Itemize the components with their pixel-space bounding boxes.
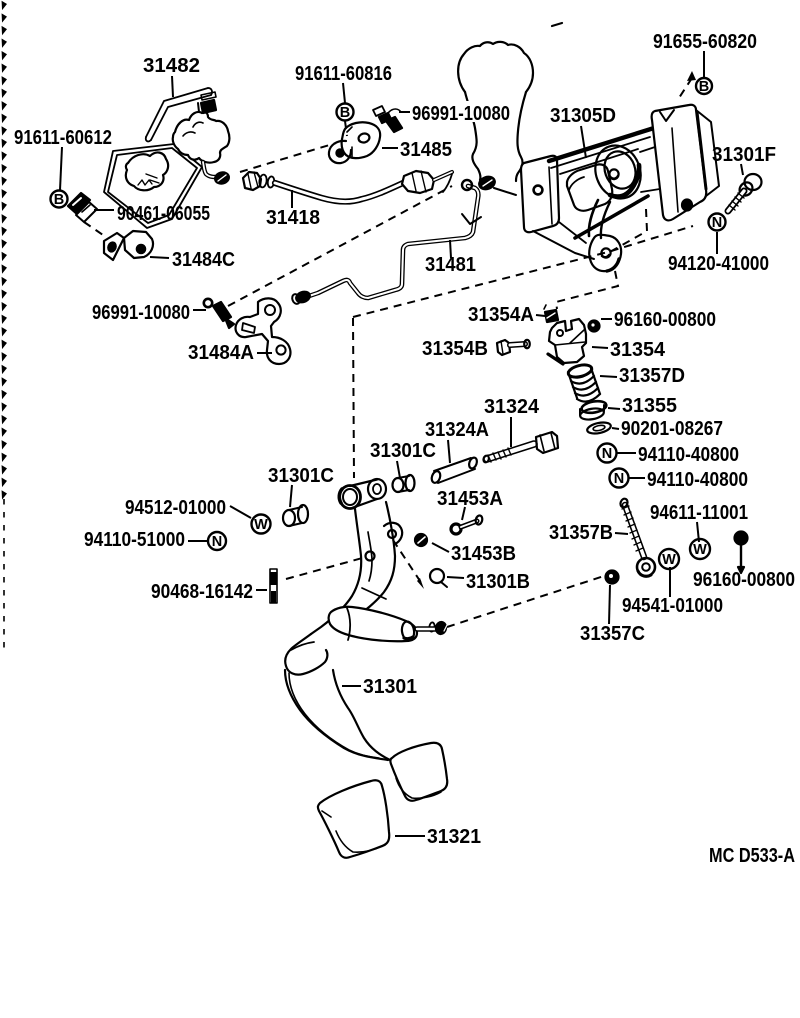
svg-text:96991-10080: 96991-10080	[92, 301, 190, 324]
svg-text:31481: 31481	[425, 253, 476, 276]
svg-text:31354A: 31354A	[468, 303, 534, 326]
svg-text:31321: 31321	[427, 825, 481, 848]
svg-text:96991-10080: 96991-10080	[412, 102, 510, 125]
svg-text:90461-06055: 90461-06055	[117, 202, 210, 225]
svg-text:N: N	[614, 471, 624, 487]
svg-text:31301C: 31301C	[268, 464, 334, 487]
svg-text:31324A: 31324A	[425, 418, 489, 441]
svg-text:N: N	[212, 534, 222, 550]
svg-text:31305D: 31305D	[550, 104, 616, 127]
svg-text:31484C: 31484C	[172, 248, 235, 271]
svg-text:94110-40800: 94110-40800	[647, 468, 748, 491]
svg-text:W: W	[662, 552, 676, 568]
svg-text:91655-60820: 91655-60820	[653, 30, 757, 53]
svg-text:31453A: 31453A	[437, 487, 503, 510]
svg-text:91611-60816: 91611-60816	[295, 62, 392, 85]
svg-text:31324: 31324	[484, 395, 540, 418]
svg-text:94110-40800: 94110-40800	[638, 443, 739, 466]
svg-text:31354B: 31354B	[422, 337, 488, 360]
svg-text:31453B: 31453B	[451, 542, 516, 565]
svg-text:90468-16142: 90468-16142	[151, 580, 253, 603]
svg-text:31357C: 31357C	[580, 622, 645, 645]
svg-text:W: W	[693, 542, 707, 558]
svg-text:31301B: 31301B	[466, 570, 530, 593]
svg-text:96160-00800: 96160-00800	[614, 308, 716, 331]
svg-text:31357D: 31357D	[619, 364, 685, 387]
svg-text:31482: 31482	[143, 54, 200, 77]
svg-text:31301C: 31301C	[370, 439, 436, 462]
svg-text:31301: 31301	[363, 675, 417, 698]
svg-text:31301F: 31301F	[712, 143, 776, 166]
svg-text:90201-08267: 90201-08267	[621, 417, 723, 440]
svg-text:91611-60612: 91611-60612	[14, 126, 112, 149]
svg-text:96160-00800: 96160-00800	[693, 568, 795, 591]
svg-text:31484A: 31484A	[188, 341, 254, 364]
svg-text:B: B	[699, 79, 709, 95]
svg-text:W: W	[254, 517, 268, 533]
svg-text:31354: 31354	[610, 338, 666, 361]
svg-text:94512-01000: 94512-01000	[125, 496, 226, 519]
svg-text:94541-01000: 94541-01000	[622, 594, 723, 617]
svg-text:N: N	[712, 215, 722, 231]
svg-text:31357B: 31357B	[549, 521, 613, 544]
svg-text:31418: 31418	[266, 206, 320, 229]
svg-text:31485: 31485	[400, 138, 452, 161]
svg-text:94110-51000: 94110-51000	[84, 528, 185, 551]
svg-text:B: B	[54, 192, 64, 208]
svg-text:94120-41000: 94120-41000	[668, 252, 769, 275]
svg-text:31355: 31355	[622, 394, 677, 417]
svg-text:94611-11001: 94611-11001	[650, 501, 748, 524]
svg-text:MC D533-A: MC D533-A	[709, 845, 795, 867]
svg-text:B: B	[340, 105, 350, 121]
svg-text:N: N	[602, 446, 612, 462]
